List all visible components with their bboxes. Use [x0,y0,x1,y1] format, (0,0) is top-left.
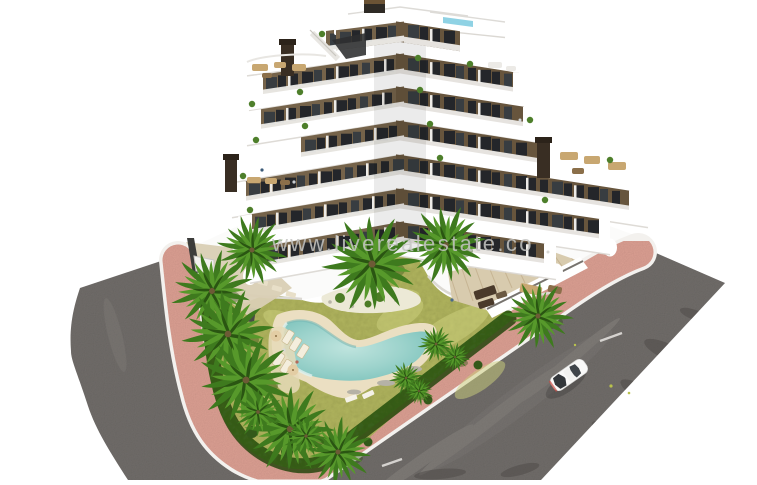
svg-text:www.liverealestate.co: www.liverealestate.co [271,231,534,256]
